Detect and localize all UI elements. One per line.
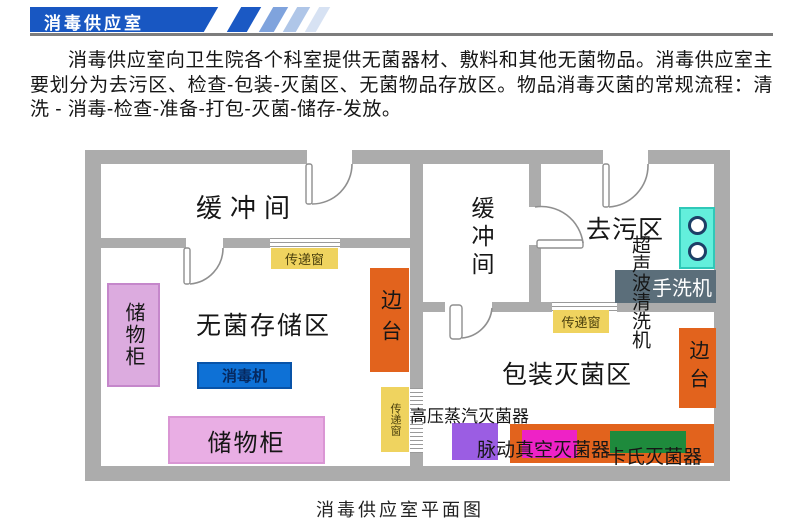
wall-segment	[85, 150, 307, 164]
wall-segment	[529, 245, 541, 302]
cabinet-bottom-label: 储物柜	[208, 423, 286, 458]
door-leaf	[450, 305, 462, 339]
wall-segment	[352, 150, 603, 164]
sink-basin-icon	[688, 242, 707, 261]
room-label-sterile-storage: 无菌存储区	[196, 306, 331, 342]
door-leaf	[306, 164, 312, 204]
banner-stripe-1	[227, 7, 261, 32]
floor-plan-caption: 消毒供应室平面图	[0, 496, 800, 522]
banner-stripe-4	[305, 7, 330, 32]
door-arc	[535, 207, 583, 243]
side-table-left: 边台	[370, 268, 409, 372]
door-arc	[312, 164, 352, 204]
wall-segment	[529, 164, 541, 207]
cassette-sterilizer-label: 卡氏灭菌器	[607, 442, 702, 469]
wall-segment	[101, 238, 186, 248]
pass-window-top-label: 传递窗	[285, 249, 324, 268]
side-table-left-label: 边台	[375, 289, 405, 351]
door-arc	[609, 164, 648, 207]
room-label-packing-sterilization: 包装灭菌区	[502, 355, 632, 391]
wall-segment	[714, 150, 730, 481]
wall-segment	[492, 302, 552, 312]
room-label-buffer-left: 缓冲间	[196, 188, 298, 225]
sink-basin-icon	[688, 216, 707, 235]
wall-segment	[410, 453, 423, 466]
cabinet-left: 储物柜	[107, 283, 160, 387]
wall-segment	[423, 302, 445, 312]
pulse-vacuum-sterilizer-label: 脉动真空灭菌器	[477, 435, 610, 462]
sink-unit	[679, 207, 715, 269]
wall-segment	[223, 238, 270, 248]
wall-segment	[340, 238, 410, 248]
hand-washer-label: 手洗机	[652, 272, 712, 301]
pass-window-right-label: 传递窗	[561, 312, 600, 331]
door-arc	[462, 308, 492, 338]
intro-paragraph: 消毒供应室向卫生院各个科室提供无菌器材、敷料和其他无菌物品。消毒供应室主要划分为…	[30, 49, 773, 123]
door-leaf	[537, 240, 583, 248]
pass-window-mid: 传递窗	[381, 387, 409, 452]
cabinet-bottom: 储物柜	[168, 416, 325, 464]
ultrasonic-cleaner-label: 超声波清洗机	[626, 235, 653, 349]
pass-window-mid-label: 传递窗	[387, 403, 403, 436]
pass-window-right: 传递窗	[553, 310, 609, 333]
cabinet-left-label: 储物柜	[119, 302, 148, 368]
door-leaf	[603, 164, 609, 207]
wall-segment	[410, 164, 423, 388]
autoclave-label: 高压蒸汽灭菌器	[410, 402, 529, 427]
pass-window-hatch	[270, 238, 340, 248]
side-table-right: 边台	[679, 328, 716, 408]
pass-window-top: 传递窗	[271, 248, 338, 269]
room-label-buffer-right: 缓冲间	[464, 196, 498, 280]
disinfector-label: 消毒机	[222, 365, 267, 386]
door-arc	[190, 248, 223, 284]
door-leaf	[184, 248, 190, 284]
wall-segment	[85, 150, 101, 481]
disinfector-machine: 消毒机	[197, 362, 292, 389]
page-title: 消毒供应室	[44, 9, 144, 34]
side-table-right-label: 边台	[683, 340, 712, 396]
